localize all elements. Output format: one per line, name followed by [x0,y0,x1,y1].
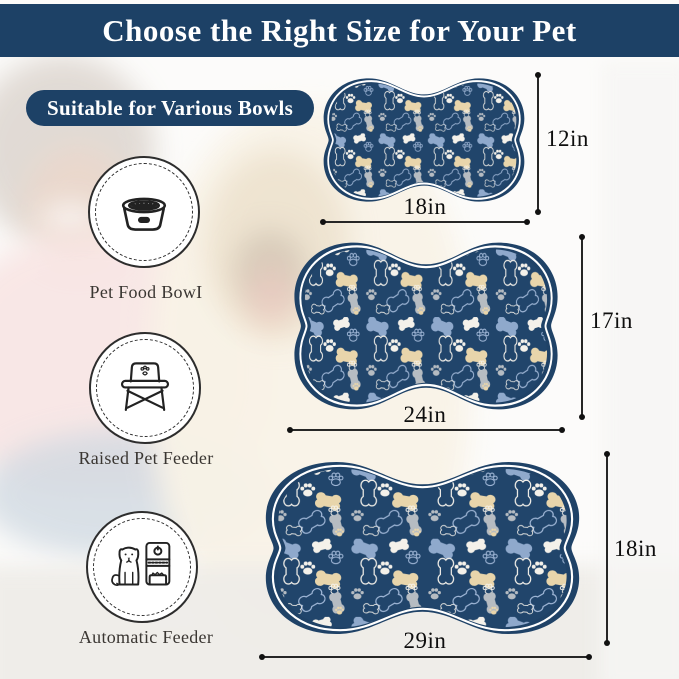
automatic-feeder-label: Automatic Feeder [26,627,266,648]
medium-mat-width-line [290,429,562,431]
large-mat-width-label: 29in [380,628,470,654]
small-mat-width-label: 18in [380,194,470,220]
pet-food-bowl-icon [109,177,179,247]
pet-food-bowl-card [88,156,200,268]
header-banner: Choose the Right Size for Your Pet [0,4,679,57]
automatic-feeder-card [86,511,198,623]
medium-mat-height-label: 17in [590,308,633,334]
automatic-feeder-icon [107,532,177,602]
raised-pet-feeder-label: Raised Pet Feeder [26,448,266,469]
raised-pet-feeder-icon [110,353,180,423]
medium-mat-width-label: 24in [380,402,470,428]
large-mat-width-line [262,656,589,658]
small-mat-height-label: 12in [546,126,589,152]
pet-food-bowl-label: Pet Food BowI [26,282,266,303]
raised-pet-feeder-card [89,332,201,444]
small-mat-height-line [537,75,539,212]
product-infographic: Choose the Right Size for Your Pet Suita… [0,0,679,679]
suitable-bowls-badge: Suitable for Various Bowls [26,90,314,126]
medium-mat-height-line [581,237,583,417]
page-title: Choose the Right Size for Your Pet [102,13,577,49]
dog-face-shape [205,150,350,340]
wall-shape [600,60,679,679]
small-mat-width-line [323,221,527,223]
large-mat-height-label: 18in [614,536,657,562]
large-mat-height-line [606,454,608,643]
